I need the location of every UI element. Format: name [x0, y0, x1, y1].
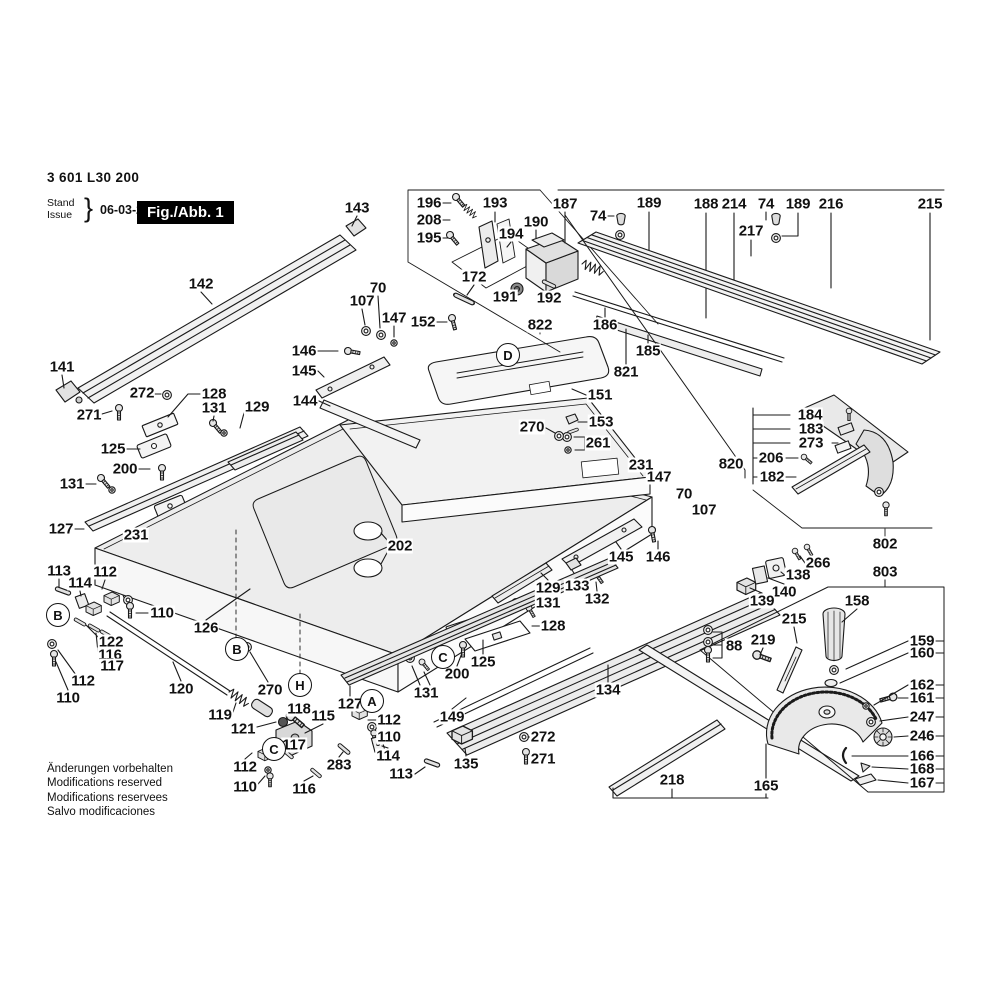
part-label-114: 114: [67, 576, 93, 591]
part-label-141: 141: [49, 360, 75, 375]
part-label-803: 803: [872, 565, 898, 580]
part-label-142: 142: [188, 277, 214, 292]
part-label-146: 146: [645, 550, 671, 565]
part-label-112: 112: [376, 713, 402, 728]
part-label-126: 126: [193, 621, 219, 636]
part-label-272: 272: [530, 730, 556, 745]
part-label-182: 182: [759, 470, 785, 485]
part-label-196: 196: [416, 196, 442, 211]
part-label-200: 200: [444, 667, 470, 682]
notice-line-es: Salvo modificaciones: [47, 805, 173, 819]
part-label-146: 146: [291, 344, 317, 359]
part-label-194: 194: [498, 227, 524, 242]
issue-label: Issue: [47, 209, 74, 221]
part-label-115: 115: [310, 709, 336, 724]
part-label-192: 192: [536, 291, 562, 306]
part-label-134: 134: [595, 683, 621, 698]
part-label-74: 74: [589, 209, 607, 224]
part-label-147: 147: [646, 470, 672, 485]
part-label-131: 131: [535, 596, 561, 611]
part-label-74: 74: [757, 197, 775, 212]
part-label-283: 283: [326, 758, 352, 773]
part-label-132: 132: [584, 592, 610, 607]
part-label-138: 138: [785, 568, 811, 583]
part-label-117: 117: [99, 659, 125, 674]
part-label-193: 193: [482, 196, 508, 211]
part-label-125: 125: [470, 655, 496, 670]
part-label-270: 270: [519, 420, 545, 435]
part-label-139: 139: [749, 594, 775, 609]
part-label-190: 190: [523, 215, 549, 230]
view-letter-C: C: [262, 737, 286, 761]
part-label-145: 145: [291, 364, 317, 379]
figure-badge: Fig./Abb. 1: [137, 201, 234, 224]
part-label-215: 215: [781, 612, 807, 627]
part-label-246: 246: [909, 729, 935, 744]
part-label-802: 802: [872, 537, 898, 552]
part-label-218: 218: [659, 773, 685, 788]
part-label-119: 119: [207, 708, 233, 723]
part-label-820: 820: [718, 457, 744, 472]
modifications-notice: Änderungen vorbehalten Modifications res…: [47, 762, 173, 819]
notice-line-de: Änderungen vorbehalten: [47, 762, 173, 776]
part-label-144: 144: [292, 394, 318, 409]
part-label-110: 110: [232, 780, 258, 795]
part-label-107: 107: [691, 503, 717, 518]
part-label-131: 131: [201, 401, 227, 416]
part-label-215: 215: [917, 197, 943, 212]
part-label-129: 129: [535, 581, 561, 596]
part-label-202: 202: [387, 539, 413, 554]
part-label-116: 116: [291, 782, 317, 797]
part-label-121: 121: [230, 722, 256, 737]
view-letter-D: D: [496, 343, 520, 367]
part-label-110: 110: [55, 691, 81, 706]
notice-line-fr: Modifications reservees: [47, 791, 173, 805]
part-label-158: 158: [844, 594, 870, 609]
part-label-160: 160: [909, 646, 935, 661]
protractor-body: [766, 687, 882, 754]
part-label-110: 110: [149, 606, 175, 621]
part-label-821: 821: [613, 365, 639, 380]
part-label-189: 189: [636, 196, 662, 211]
part-label-88: 88: [725, 639, 743, 654]
view-letter-A: A: [360, 689, 384, 713]
part-label-167: 167: [909, 776, 935, 791]
part-label-188: 188: [693, 197, 719, 212]
part-label-125: 125: [100, 442, 126, 457]
part-label-216: 216: [818, 197, 844, 212]
part-label-131: 131: [413, 686, 439, 701]
part-label-128: 128: [540, 619, 566, 634]
part-label-272: 272: [129, 386, 155, 401]
part-label-231: 231: [123, 528, 149, 543]
stand-issue-label: Stand Issue: [47, 197, 74, 221]
part-label-270: 270: [257, 683, 283, 698]
part-label-189: 189: [785, 197, 811, 212]
part-label-118: 118: [286, 702, 312, 717]
document-part-number: 3 601 L30 200: [47, 170, 139, 185]
parts-diagram-page: 3 601 L30 200 Stand Issue } 06-03-21 Fig…: [0, 0, 1000, 1000]
part-label-208: 208: [416, 213, 442, 228]
part-label-153: 153: [588, 415, 614, 430]
notice-line-en: Modifications reserved: [47, 776, 173, 790]
part-label-152: 152: [410, 315, 436, 330]
part-label-143: 143: [344, 201, 370, 216]
part-label-131: 131: [59, 477, 85, 492]
part-label-261: 261: [585, 436, 611, 451]
clamp-143: [346, 219, 366, 236]
part-label-129: 129: [244, 400, 270, 415]
view-letter-H: H: [288, 673, 312, 697]
part-label-151: 151: [587, 388, 613, 403]
part-label-247: 247: [909, 710, 935, 725]
view-letter-C: C: [431, 645, 455, 669]
brace-glyph: }: [84, 193, 93, 224]
part-label-191: 191: [492, 290, 518, 305]
stand-label: Stand: [47, 197, 74, 209]
part-label-172: 172: [461, 270, 487, 285]
fence-rail-top: [578, 232, 940, 364]
part-label-273: 273: [798, 436, 824, 451]
carriage-151: [428, 337, 608, 405]
part-label-187: 187: [552, 197, 578, 212]
part-label-135: 135: [453, 757, 479, 772]
view-letter-B: B: [225, 637, 249, 661]
part-label-206: 206: [758, 451, 784, 466]
part-label-161: 161: [909, 691, 935, 706]
part-label-165: 165: [753, 779, 779, 794]
part-label-149: 149: [439, 710, 465, 725]
part-label-185: 185: [635, 344, 661, 359]
part-label-271: 271: [530, 752, 556, 767]
part-label-200: 200: [112, 462, 138, 477]
diagram-line-art: [0, 0, 1000, 1000]
part-label-195: 195: [416, 231, 442, 246]
part-label-113: 113: [388, 767, 414, 782]
part-label-214: 214: [721, 197, 747, 212]
part-label-186: 186: [592, 318, 618, 333]
part-label-219: 219: [750, 633, 776, 648]
part-label-271: 271: [76, 408, 102, 423]
part-label-110: 110: [376, 730, 402, 745]
part-label-112: 112: [70, 674, 96, 689]
part-label-114: 114: [375, 749, 401, 764]
part-label-145: 145: [608, 550, 634, 565]
part-label-217: 217: [738, 224, 764, 239]
part-label-822: 822: [527, 318, 553, 333]
part-label-147: 147: [381, 311, 407, 326]
part-label-112: 112: [232, 760, 258, 775]
part-label-112: 112: [92, 565, 118, 580]
part-label-70: 70: [675, 487, 693, 502]
view-letter-B: B: [46, 603, 70, 627]
part-label-120: 120: [168, 682, 194, 697]
part-label-127: 127: [48, 522, 74, 537]
part-label-107: 107: [349, 294, 375, 309]
